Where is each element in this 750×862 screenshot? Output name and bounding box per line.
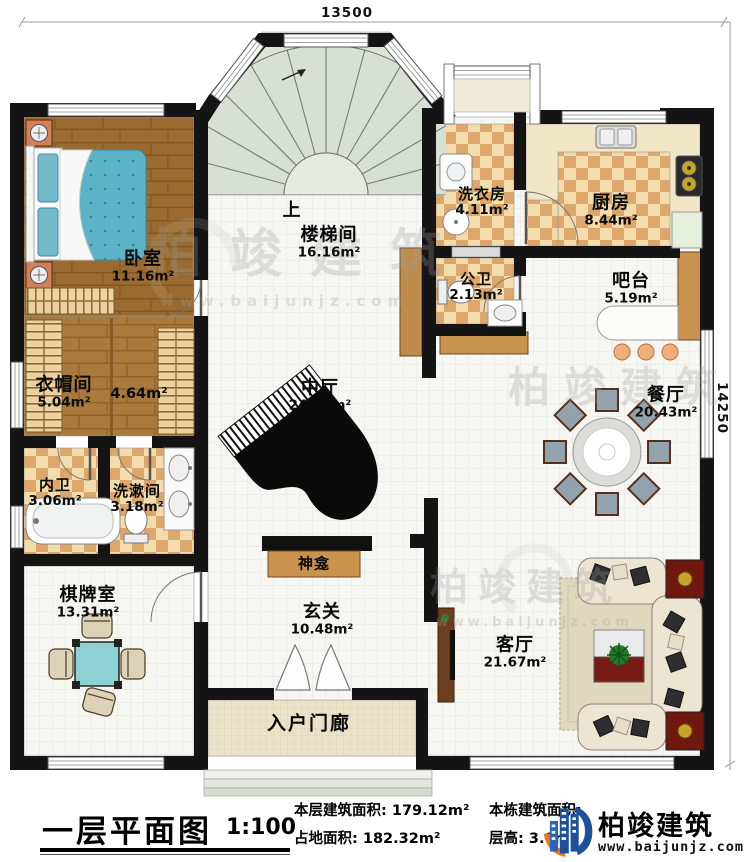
room-label-public-bath: 公卫2.13m² bbox=[449, 271, 502, 303]
room-label-porch: 入户门廊 bbox=[267, 713, 351, 734]
brand-logo-icon bbox=[540, 800, 594, 860]
title-underline bbox=[40, 848, 290, 860]
bar-stool bbox=[638, 344, 654, 360]
bathtub-tap bbox=[33, 518, 39, 524]
room-label-bar: 吧台5.19m² bbox=[604, 271, 657, 306]
cloak-divider bbox=[110, 318, 113, 436]
room-label-laundry: 洗衣房4.11m² bbox=[455, 186, 508, 218]
cloakroom-window bbox=[11, 362, 23, 428]
room-label-central-hall: 中厅24.07m² bbox=[289, 378, 352, 413]
room-label-cloak-corridor: 4.64m² bbox=[110, 386, 167, 402]
sink bbox=[169, 491, 189, 517]
room-label-living: 客厅21.67m² bbox=[484, 635, 547, 670]
plan-scale: 1:100 bbox=[226, 815, 296, 840]
footprint-area: 占地面积: 182.32m² bbox=[294, 832, 469, 847]
pillow bbox=[38, 154, 58, 202]
svg-text:柏竣建筑: 柏竣建筑 bbox=[430, 565, 622, 609]
floor-area: 本层建筑面积: 179.12m² bbox=[294, 804, 469, 819]
svg-text:www.baijunjz.com: www.baijunjz.com bbox=[160, 292, 409, 310]
stair-up-label: 上 bbox=[283, 201, 302, 221]
mahjong-table bbox=[75, 642, 119, 686]
sink bbox=[494, 305, 516, 321]
title-block: 一层平面图 1:100 本层建筑面积: 179.12m² 占地面积: 182.3… bbox=[0, 798, 750, 862]
room-label-kitchen: 厨房8.44m² bbox=[584, 193, 637, 228]
brand-website: www.baijunjz.com bbox=[598, 839, 744, 855]
fridge bbox=[672, 212, 702, 248]
room-label-stair-hall: 楼梯间16.16m² bbox=[298, 225, 361, 260]
brand-name: 柏竣建筑 bbox=[598, 804, 714, 843]
room-label-shrine: 神龛 bbox=[298, 556, 330, 573]
kitchen-window bbox=[562, 111, 666, 123]
room-label-washroom: 洗漱间3.18m² bbox=[110, 483, 163, 515]
game-room-window bbox=[48, 757, 164, 769]
room-label-master-bath: 内卫3.06m² bbox=[28, 477, 81, 509]
dimension-right: 14250 bbox=[714, 382, 730, 434]
living-window bbox=[470, 757, 674, 769]
bedroom-window bbox=[48, 104, 164, 116]
bar-stool bbox=[614, 344, 630, 360]
bar-stool bbox=[662, 344, 678, 360]
svg-text:柏竣建筑: 柏竣建筑 bbox=[508, 363, 732, 412]
room-label-bedroom: 卧室11.16m² bbox=[112, 249, 175, 284]
room-label-foyer: 玄关10.48m² bbox=[291, 602, 354, 637]
room-label-cloakroom: 衣帽间5.04m² bbox=[36, 375, 93, 410]
bar-cabinet bbox=[678, 252, 702, 340]
plan-title: 一层平面图 bbox=[42, 806, 212, 851]
sink bbox=[169, 455, 189, 481]
room-label-dining: 餐厅20.43m² bbox=[635, 385, 698, 420]
stair-bay-window-top bbox=[284, 34, 368, 47]
bath-window bbox=[11, 506, 23, 548]
tv bbox=[450, 630, 455, 680]
bed-headboard bbox=[26, 146, 34, 262]
room-label-game-room: 棋牌室13.31m² bbox=[57, 585, 120, 620]
dimension-top: 13500 bbox=[321, 5, 373, 21]
coffee-table bbox=[594, 630, 644, 682]
svg-text:www.baijunjz.com: www.baijunjz.com bbox=[436, 615, 633, 630]
porch-steps bbox=[204, 770, 432, 796]
floor-plan-page: 柏竣建筑 www.baijunjz.com 柏竣建筑 柏竣建筑 www.baij… bbox=[0, 0, 750, 862]
pillow bbox=[38, 208, 58, 256]
